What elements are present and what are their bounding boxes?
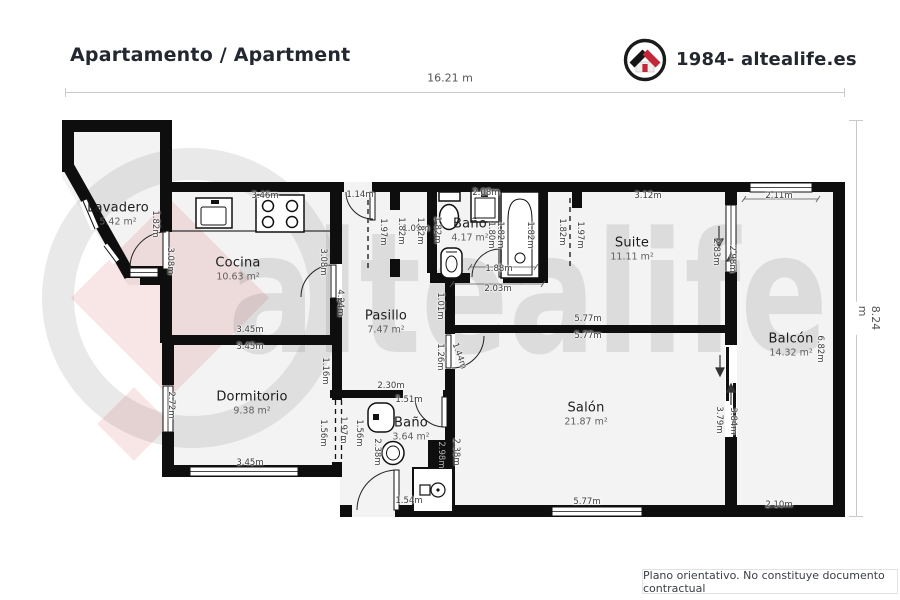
floor-plan-drawing: altealife [0,0,900,600]
footer-disclaimer: Plano orientativo. No constituye documen… [643,569,897,595]
shower-icon [413,468,453,512]
washbasin2-icon [368,403,394,432]
floor-plan-page: Apartamento / Apartment 1984- altealife.… [0,0,900,600]
bathtub-icon [501,192,539,278]
washbasin-icon [471,191,499,222]
kitchen-sink-icon [196,198,232,228]
toilet-icon [439,192,460,230]
stove-icon [256,195,304,232]
toilet2-icon [382,442,404,465]
bidet-icon [441,248,462,278]
footer-disclaimer-box: Plano orientativo. No constituye documen… [642,569,898,594]
